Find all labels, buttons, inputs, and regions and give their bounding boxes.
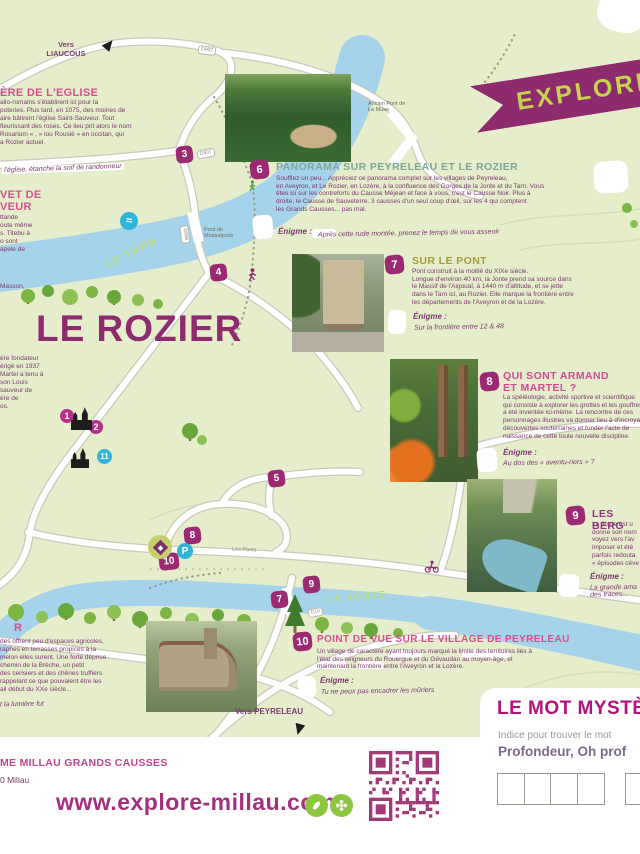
panel-body-6: Soufflez un peu... Appréciez ce panorama… — [276, 175, 636, 214]
map-title: LE ROZIER — [36, 308, 242, 350]
panel-badge-7[interactable]: 7 — [384, 254, 405, 275]
block-chevet-note: Masson, — [0, 283, 25, 291]
map-marker-3[interactable]: 3 — [175, 145, 194, 164]
panel-body-10: Un village de caractère ayant toujours m… — [317, 648, 627, 671]
mystery-clue: Profondeur, Oh prof — [498, 744, 626, 759]
answer-box-9[interactable] — [558, 573, 580, 597]
enigme-text-9: La grande ama des traces... — [590, 583, 640, 598]
answer-box-8[interactable] — [476, 447, 498, 472]
website-link[interactable]: www.explore-millau.com — [56, 789, 336, 816]
cliffs — [503, 479, 557, 513]
hiker-icon-green — [248, 180, 257, 198]
road-label-d907-top: D907 — [198, 45, 217, 56]
direction-peyreleau: Vers PEYRELEAU — [235, 707, 303, 716]
panel-badge-9[interactable]: 9 — [565, 505, 586, 526]
mystery-letterboxes-group2 — [625, 773, 640, 805]
photo-gorge-river — [467, 479, 557, 592]
block-church-body: allo-romains s'établirent ici pour la po… — [0, 99, 160, 147]
panel-title-8: QUI SONT ARMAND ET MARTEL ? — [503, 371, 609, 394]
panel-body-7: Pont construit à la moitié du XIXe siècl… — [412, 268, 640, 307]
road-label-les-ponts: Les Ponts — [232, 547, 257, 554]
mystery-title: LE MOT MYSTÈRE — [497, 698, 640, 720]
map-marker-5[interactable]: 5 — [267, 469, 286, 488]
leaf-badge-icon[interactable] — [305, 794, 328, 817]
mystery-word-card: LE MOT MYSTÈRE Indice pour trouver le mo… — [480, 688, 640, 854]
hiker-icon — [247, 268, 258, 288]
block-church-heading: ÈRE DE L'EGLISE — [0, 87, 98, 99]
panel-body-9: La Jonte est u donne son nom voyez vers … — [592, 521, 640, 567]
panel-badge-8[interactable]: 8 — [479, 371, 500, 392]
orange-flowers — [390, 433, 452, 482]
bridge-label-mostuejouls: Pont de Mostuéjouls — [204, 227, 233, 239]
answer-box-6[interactable] — [252, 214, 274, 240]
block-terrasses-note: t la lumière fut — [0, 701, 44, 709]
block-terrasses-heading: R — [14, 622, 22, 634]
panel-title-6: PANORAMA SUR PEYRELEAU ET LE ROZIER — [276, 161, 518, 173]
letter-box[interactable] — [497, 773, 525, 805]
river-in-photo — [475, 533, 549, 592]
enigme-label-6: Énigme : — [278, 227, 312, 236]
stone-house — [323, 260, 363, 331]
parking-marker[interactable]: P — [177, 543, 193, 559]
photo-panorama-forest-village — [225, 74, 351, 162]
block-chevet-body: ttande oute même s. Titebu à o sont apel… — [0, 214, 60, 254]
enigme-label-7: Énigme : — [413, 312, 447, 321]
photo-stone-house-street — [292, 254, 384, 352]
map-marker-11[interactable]: 11 — [97, 449, 112, 464]
photo-peyreleau-village — [146, 621, 257, 712]
block-terrasses-body: des offrent peu d'espaces agricoles, rap… — [0, 638, 135, 694]
viewpoint-marker[interactable] — [148, 535, 172, 559]
direction-liaucous: Vers LIAUCOUS — [40, 40, 92, 58]
answer-box-7[interactable] — [387, 309, 407, 334]
enigme-label-8: Énigme : — [503, 448, 537, 457]
map-marker-8[interactable]: 8 — [183, 526, 202, 545]
village-in-photo — [285, 122, 342, 150]
map-marker-7[interactable]: 7 — [270, 590, 289, 609]
qr-code[interactable] — [369, 751, 439, 821]
panel-body-8: La spéléologie, activité sportive et sci… — [503, 394, 640, 440]
footer-org: ME MILLAU GRANDS CAUSSES — [0, 757, 168, 769]
village-tower — [204, 628, 217, 659]
street-in-photo — [292, 332, 384, 352]
map-marker-4[interactable]: 4 — [209, 263, 228, 282]
letter-box[interactable] — [524, 773, 552, 805]
panel-badge-6[interactable]: 6 — [249, 159, 270, 180]
panel-badge-10[interactable]: 10 — [292, 631, 313, 652]
letter-box[interactable] — [550, 773, 578, 805]
cyclist-icon — [424, 560, 439, 578]
mystery-letterboxes-group1 — [497, 773, 603, 805]
diamond-icon — [152, 539, 168, 555]
enigme-label-9: Énigme : — [590, 572, 624, 581]
footer-address: 0 Millau — [0, 775, 29, 785]
water-activity-marker[interactable]: ≈ — [120, 212, 138, 230]
bridge-label-muse: Ancien Pont de La Muse — [368, 101, 405, 113]
photo-garden-panels — [390, 359, 478, 482]
village-houses — [159, 641, 237, 691]
flower-badge-icon[interactable] — [330, 794, 353, 817]
fern — [390, 384, 425, 427]
block-chevet-heading: VET DE VEUR — [0, 189, 42, 213]
letter-box[interactable] — [577, 773, 605, 805]
tree-in-photo — [292, 254, 320, 332]
tourist-map-page: LE ROZIER LE TARN LA JONTE Vers LIAUCOUS… — [0, 0, 640, 854]
panel-title-7: SUR LE PONT — [412, 255, 487, 267]
panel-title-10: POINT DE VUE SUR LE VILLAGE DE PEYRELEAU — [317, 634, 570, 645]
map-marker-9[interactable]: 9 — [302, 575, 321, 594]
enigme-label-10: Énigme : — [320, 676, 354, 685]
letter-box[interactable] — [625, 773, 640, 805]
answer-box-10[interactable] — [297, 675, 317, 698]
mystery-hint: Indice pour trouver le mot — [498, 730, 611, 741]
block-fondateur-body: ère fondateur érigé en 1937 Martel a ten… — [0, 355, 55, 411]
